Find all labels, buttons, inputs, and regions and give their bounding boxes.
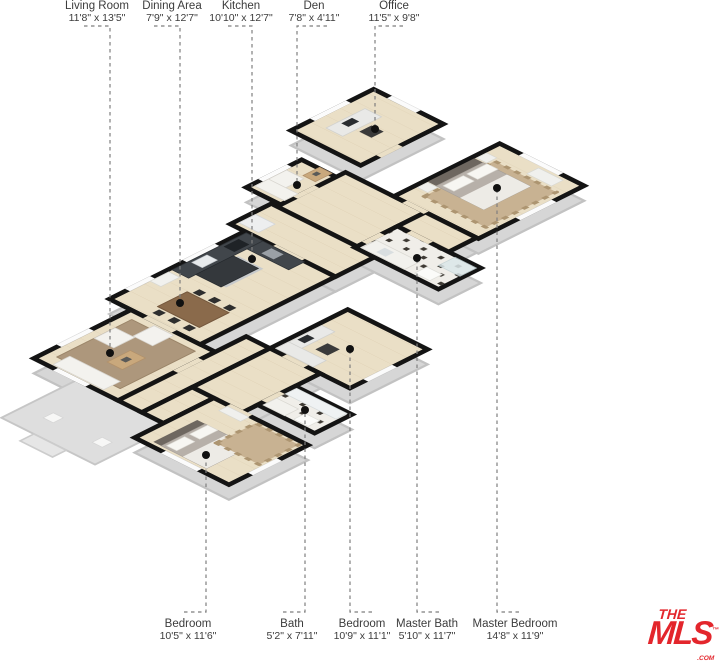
room-name: Dining Area — [142, 0, 201, 12]
room-name: Living Room — [65, 0, 129, 12]
room-dims: 7'8" x 4'11" — [289, 12, 340, 24]
label-master-bedroom: Master Bedroom 14'8" x 11'9" — [472, 618, 557, 642]
room-name: Bedroom — [334, 618, 391, 630]
leader-master-bedroom — [497, 192, 519, 612]
label-living-room: Living Room 11'8" x 13'5" — [65, 0, 129, 24]
room-dims: 14'8" x 11'9" — [472, 630, 557, 642]
floorplan-3d-rendering — [0, 0, 719, 664]
room-name: Master Bath — [396, 618, 458, 630]
room-dims: 10'5" x 11'6" — [160, 630, 217, 642]
label-dining-area: Dining Area 7'9" x 12'7" — [142, 0, 201, 24]
room-dims: 11'5" x 9'8" — [369, 12, 420, 24]
leader-master-bath — [417, 262, 439, 612]
leader-dot-master-bedroom — [493, 184, 501, 192]
room-name: Den — [289, 0, 340, 12]
room-dims: 7'9" x 12'7" — [142, 12, 201, 24]
leader-dot-office — [371, 125, 379, 133]
leader-dot-master-bath — [413, 254, 421, 262]
room-name: Master Bedroom — [472, 618, 557, 630]
leader-dot-kitchen — [248, 255, 256, 263]
floors — [0, 85, 706, 515]
label-office: Office 11'5" x 9'8" — [369, 0, 420, 24]
room-dims: 10'10" x 12'7" — [209, 12, 272, 24]
label-bath: Bath 5'2" x 7'11" — [267, 618, 318, 642]
leader-dot-bedroom-2 — [346, 345, 354, 353]
leader-dot-living-room — [106, 349, 114, 357]
label-bedroom-1: Bedroom 10'5" x 11'6" — [160, 618, 217, 642]
room-name: Office — [369, 0, 420, 12]
room-dims: 5'2" x 7'11" — [267, 630, 318, 642]
leader-dot-bath — [301, 406, 309, 414]
floorplan-page: { "branding": { "the": "THE", "mls": "ML… — [0, 0, 719, 664]
label-master-bath: Master Bath 5'10" x 11'7" — [396, 618, 458, 642]
logo-com-text: .COM — [697, 655, 714, 662]
room-dims: 10'9" x 11'1" — [334, 630, 391, 642]
logo-mls-text: MLS™ — [647, 616, 719, 649]
leader-dining-area — [154, 26, 180, 299]
leader-dot-den — [293, 181, 301, 189]
leader-dot-dining-area — [176, 299, 184, 307]
leader-dot-bedroom-1 — [202, 451, 210, 459]
room-name: Bedroom — [160, 618, 217, 630]
room-name: Kitchen — [209, 0, 272, 12]
room-dims: 11'8" x 13'5" — [65, 12, 129, 24]
mls-logo: THE MLS™ .COM — [645, 608, 716, 658]
label-kitchen: Kitchen 10'10" x 12'7" — [209, 0, 272, 24]
room-dims: 5'10" x 11'7" — [396, 630, 458, 642]
room-name: Bath — [267, 618, 318, 630]
label-bedroom-2: Bedroom 10'9" x 11'1" — [334, 618, 391, 642]
label-den: Den 7'8" x 4'11" — [289, 0, 340, 24]
leader-living-room — [84, 26, 110, 349]
logo-tm-mark: ™ — [712, 627, 719, 634]
